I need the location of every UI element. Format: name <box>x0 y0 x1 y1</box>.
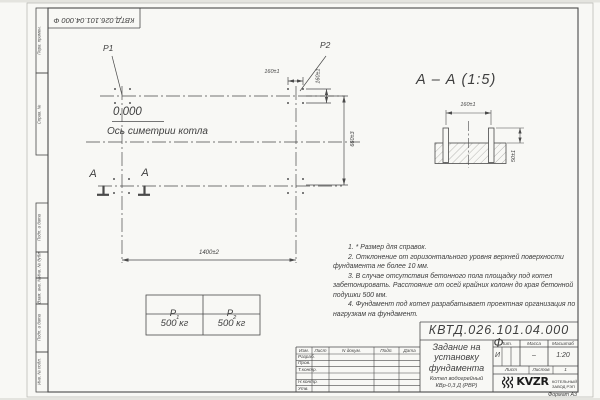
elevation-mark: 0.000 <box>113 106 168 118</box>
note-2: 2. Отклонение от горизонтального уровня … <box>333 253 579 272</box>
sig-utv: Утв. <box>298 387 328 392</box>
drawing-sheet: КВТД.026.101.04.000 Ф Перв. примен. Спра… <box>0 0 600 400</box>
kvzr-logo-caption: КОТЕЛЬНЫЙ ЗАВОД РЭП <box>552 379 578 389</box>
sheet-label: Лист <box>493 368 529 373</box>
note-3: 3. В случае отсутствия бетонного пола пл… <box>333 272 579 301</box>
scale-value: 1:20 <box>548 352 578 359</box>
section-letter-a2: А <box>138 168 152 180</box>
note-1: 1. * Размер для справок. <box>333 243 579 253</box>
load-label-p1: P1 <box>103 44 123 53</box>
designation-stamp-rotated: КВТД.026.101.04.000 Ф <box>50 12 138 24</box>
margin-field-inv-podl: Инв. № подл. <box>38 337 47 400</box>
sig-prov: Пров. <box>298 361 328 366</box>
lit-value: И <box>493 352 502 359</box>
dim-bolt-spacing-v: 160±1 <box>317 62 325 91</box>
section-letter-a1: А <box>86 169 100 181</box>
loads-table-value-p2: 500 кг <box>204 319 259 329</box>
sheets-label: Листов <box>529 368 553 373</box>
boiler-axis-label: Ось симетрии котла <box>107 127 257 138</box>
margin-field-perv-primen: Перв. примен. <box>38 6 47 76</box>
col-data: Дата <box>399 349 420 354</box>
col-izm: Изм. <box>296 349 312 354</box>
sheets-value: 1 <box>553 368 578 373</box>
loads-table-value-p1: 500 кг <box>147 319 202 329</box>
margin-field-sprav-n: Справ. № <box>38 80 47 150</box>
dim-foundation-width: 660±3 <box>351 124 359 154</box>
sig-tkontr: Т.контр. <box>298 368 328 373</box>
load-label-p2: P2 <box>320 41 340 50</box>
col-podp: Подп. <box>374 349 399 354</box>
title-block-doc-title: Задание на установку фундамента <box>421 342 492 373</box>
section-dim-bolt-spacing: 160±1 <box>452 103 484 109</box>
mass-label: Масса <box>520 342 548 347</box>
anchor-bolt-right <box>489 128 495 163</box>
product-name: Котел водогрейный КВр-0,3 Д (РВР) <box>421 376 492 391</box>
col-ndokum: N докум. <box>329 349 374 354</box>
sig-nkontr: Н.контр. <box>298 380 328 385</box>
section-cut-marks <box>97 186 150 196</box>
section-title: А – А (1:5) <box>416 73 546 88</box>
technical-notes: 1. * Размер для справок. 2. Отклонение о… <box>333 243 579 319</box>
dim-bolt-spacing-h: 160±1 <box>258 70 286 76</box>
section-dim-bolt-height: 50±1 <box>512 144 520 168</box>
format-note: Формат А3 <box>530 393 577 399</box>
note-4: 4. Фундамент под котел разрабатывает про… <box>333 300 579 319</box>
scale-label: Масштаб <box>548 342 578 347</box>
mass-value: – <box>520 352 548 359</box>
dim-foundation-length: 1400±2 <box>184 250 234 256</box>
sig-razrab: Разраб. <box>298 355 328 360</box>
anchor-bolt-left <box>443 128 449 163</box>
col-list: Лист <box>312 349 329 354</box>
kvzr-logo-icon <box>502 376 513 391</box>
lit-label: Лит. <box>493 342 520 347</box>
kvzr-logo-name: KVZR <box>514 376 551 388</box>
